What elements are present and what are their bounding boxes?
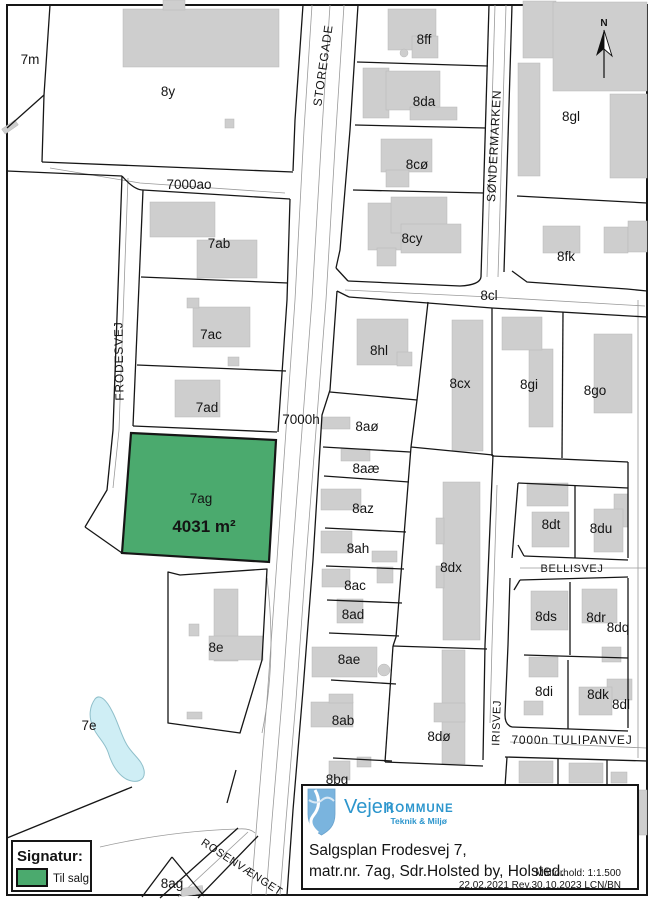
legend-item-til-salg: Til salg: [53, 873, 89, 885]
parcel-label-7e: 7e: [81, 718, 96, 733]
info-box: Vejen KOMMUNE Teknik & Miljø Salgsplan F…: [302, 785, 638, 891]
street-label-bellisvej: BELLISVEJ: [541, 563, 604, 575]
info-revision: 22.02.2021 Rev.30.10.2023 LCN/BN: [459, 880, 621, 891]
parcel-label-8gi: 8gi: [520, 377, 538, 392]
road-label-7000h: 7000h: [282, 412, 320, 427]
parcel-label-8e: 8e: [208, 640, 223, 655]
logo-org-name2: KOMMUNE: [386, 803, 454, 815]
parcel-label-8ah: 8ah: [347, 541, 370, 556]
parcel-label-8da: 8da: [413, 94, 436, 109]
parcel-label-8gl: 8gl: [562, 109, 580, 124]
legend: Signatur: Til salg: [12, 841, 91, 891]
info-title-line2: matr.nr. 7ag, Sdr.Holsted by, Holsted.: [309, 863, 565, 880]
parcel-label-8ag: 8ag: [161, 876, 184, 891]
parcel-label-8aae: 8aæ: [352, 461, 379, 476]
parcel-label-8fk: 8fk: [557, 249, 575, 264]
legend-swatch-til-salg: [17, 869, 47, 886]
street-label-irisvej: IRISVEJ: [490, 700, 504, 746]
parcel-label-8cx: 8cx: [449, 376, 470, 391]
street-label-frodesvej: FRODESVEJ: [111, 321, 126, 400]
sale-parcel-area: 4031 m²: [172, 517, 236, 536]
parcel-label-8y: 8y: [161, 84, 176, 99]
logo-dept: Teknik & Miljø: [390, 816, 447, 826]
parcel-label-8dt: 8dt: [542, 517, 561, 532]
parcel-label-8ao: 8aø: [355, 419, 378, 434]
north-label: N: [600, 18, 607, 29]
info-scale: Målforhold: 1:1.500: [535, 867, 621, 879]
parcel-label-8ae: 8ae: [338, 652, 361, 667]
parcel-label-7m: 7m: [21, 52, 40, 67]
parcel-label-8ff: 8ff: [417, 32, 432, 47]
parcel-label-8dr: 8dr: [586, 610, 606, 625]
legend-title: Signatur:: [17, 848, 83, 865]
parcel-label-8co: 8cø: [406, 157, 429, 172]
parcel-label-7ab: 7ab: [208, 236, 231, 251]
parcel-label-8dl: 8dl: [612, 697, 630, 712]
parcel-label-7ad: 7ad: [196, 400, 219, 415]
parcel-label-8du: 8du: [590, 521, 613, 536]
parcel-label-8dq: 8dq: [607, 620, 630, 635]
parcel-label-8dk: 8dk: [587, 687, 609, 702]
parcel-label-8az: 8az: [352, 501, 374, 516]
parcel-label-8ab: 8ab: [332, 713, 355, 728]
parcel-label-8cy: 8cy: [401, 231, 422, 246]
parcel-label-8do: 8dø: [427, 729, 450, 744]
info-title-line1: Salgsplan Frodesvej 7,: [309, 842, 467, 859]
parcel-label-8ad: 8ad: [342, 607, 365, 622]
parcel-label-8hl: 8hl: [370, 343, 388, 358]
cadastral-map: N 7m 8y 8ff 8da 8gl 8cø 8cy 8fk 8cl 8hl …: [0, 0, 653, 900]
parcel-label-8go: 8go: [584, 383, 607, 398]
road-label-7000ao: 7000ao: [166, 177, 211, 192]
parcel-label-8dx: 8dx: [440, 560, 462, 575]
street-label-tulipanvej: 7000n TULIPANVEJ: [511, 733, 632, 747]
map-canvas: N 7m 8y 8ff 8da 8gl 8cø 8cy 8fk 8cl 8hl …: [0, 0, 653, 900]
parcel-label-8di: 8di: [535, 684, 553, 699]
parcel-label-8ds: 8ds: [535, 609, 557, 624]
parcel-label-7ac: 7ac: [200, 327, 222, 342]
parcel-label-8ac: 8ac: [344, 578, 366, 593]
road-label-8cl: 8cl: [480, 288, 497, 303]
sale-parcel-label: 7ag: [190, 491, 213, 506]
